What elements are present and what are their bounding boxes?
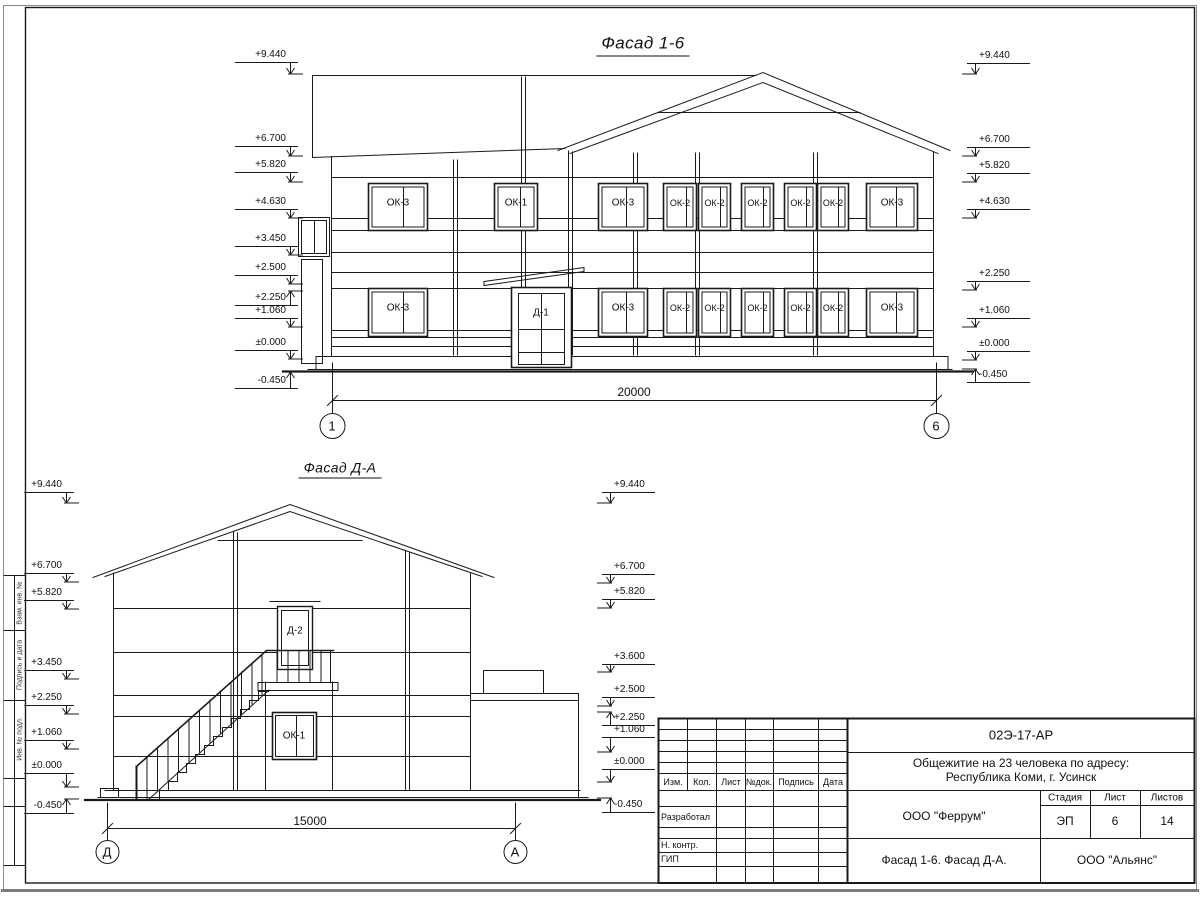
- window-label: ОК-2: [790, 198, 810, 208]
- axis-label: 6: [932, 419, 939, 434]
- titleblock-row-nkontr: Н. контр.: [661, 840, 698, 850]
- sidestamp-podpis-data: Подпись и дата: [17, 640, 24, 690]
- roof-box: [484, 671, 544, 694]
- titleblock-stage-label: Стадия: [1048, 793, 1082, 804]
- elevation-label: +6.700: [979, 134, 1010, 145]
- axis-label: А: [511, 845, 520, 860]
- titleblock-project-line1: Общежитие на 23 человека по адресу:: [913, 756, 1129, 770]
- dimension-label: 15000: [293, 814, 326, 828]
- titleblock-sheet-value: 6: [1112, 814, 1119, 828]
- elevation-label: +2.250: [614, 712, 645, 723]
- titleblock-sheets-value: 14: [1160, 814, 1173, 828]
- elevation-label: +5.820: [979, 160, 1010, 171]
- titleblock-contractor: ООО "Альянс": [1077, 853, 1157, 867]
- facade-16-title: Фасад 1-6: [596, 34, 689, 57]
- elevation-label: -0.450: [258, 375, 286, 386]
- titleblock-company: ООО "Феррум": [903, 809, 986, 823]
- sidestamp-vzam-inv: Взам. инв. №: [17, 581, 24, 624]
- window-label: ОК-2: [823, 198, 843, 208]
- window-label: ОК-2: [670, 198, 690, 208]
- window-label: ОК-2: [704, 303, 724, 313]
- wing: [471, 694, 579, 799]
- elevation-label: +2.250: [255, 292, 286, 303]
- elevation-label: +2.250: [979, 268, 1010, 279]
- window-label: ОК-1: [283, 731, 306, 742]
- elevation-label: +4.630: [255, 196, 286, 207]
- elevation-label: +6.700: [614, 561, 645, 572]
- door-label: Д-1: [533, 308, 549, 319]
- elevation-label: +6.700: [31, 560, 62, 571]
- elevation-label: -0.450: [614, 799, 642, 810]
- elevation-label: +5.820: [255, 159, 286, 170]
- titleblock-sheets-label: Листов: [1151, 793, 1184, 804]
- elevation-label: ±0.000: [255, 337, 286, 348]
- stoop: [101, 789, 119, 798]
- window-label: ОК-1: [505, 197, 528, 208]
- titleblock-col-data: Дата: [823, 777, 843, 787]
- elevation-label: ±0.000: [979, 338, 1010, 349]
- window-label: ОК-2: [823, 303, 843, 313]
- titleblock-project-line2: Республика Коми, г. Усинск: [946, 770, 1097, 784]
- titleblock-col-podpis: Подпись: [778, 777, 814, 787]
- elevation-label: +1.060: [979, 305, 1010, 316]
- sidestamp-inv-podl: Инв. № подл.: [17, 717, 24, 761]
- drawing-sheet: Фасад 1-6 Фасад Д-А 20000 15000 1 6 Д А …: [0, 0, 1200, 900]
- dimension-label: 20000: [617, 385, 650, 399]
- elevation-label: -0.450: [979, 369, 1007, 380]
- elevation-label: +9.440: [614, 479, 645, 490]
- elevation-label: +3.450: [31, 657, 62, 668]
- flat-roof: [313, 76, 757, 158]
- elevation-label: +9.440: [31, 479, 62, 490]
- titleblock-stage-value: ЭП: [1056, 814, 1073, 828]
- door-label: Д-2: [287, 626, 303, 637]
- facade-16-drawing: [283, 73, 973, 439]
- elevation-label: +6.700: [255, 133, 286, 144]
- plinth: [98, 791, 588, 798]
- titleblock-sheet-label: Лист: [1104, 793, 1126, 804]
- window-label: ОК-3: [881, 197, 904, 208]
- titleblock-col-kol: Кол.: [693, 777, 711, 787]
- elevation-label: +9.440: [255, 49, 286, 60]
- elevation-label: +1.060: [31, 727, 62, 738]
- elevation-label: +5.820: [31, 587, 62, 598]
- titleblock-doc-number: 02Э-17-АР: [989, 728, 1053, 743]
- window-label: ОК-2: [747, 303, 767, 313]
- elevation-label: +1.060: [614, 724, 645, 735]
- axis-label: Д: [103, 845, 112, 860]
- window-label: ОК-2: [670, 303, 690, 313]
- elevation-label: +3.600: [614, 651, 645, 662]
- elevation-label: +2.500: [255, 262, 286, 273]
- elevation-label: +3.450: [255, 233, 286, 244]
- facade-da-title: Фасад Д-А: [299, 460, 382, 479]
- stairs: [148, 690, 269, 800]
- window-label: ОК-3: [612, 302, 635, 313]
- titleblock-col-ndok: №док.: [746, 777, 772, 787]
- elevation-label: -0.450: [34, 800, 62, 811]
- elevation-label: +5.820: [614, 586, 645, 597]
- elevation-label: ±0.000: [614, 756, 645, 767]
- window-label: ОК-2: [747, 198, 767, 208]
- titleblock-col-izm: Изм.: [663, 777, 682, 787]
- elevation-label: +4.630: [979, 196, 1010, 207]
- elevation-label: +2.250: [31, 692, 62, 703]
- window-label: ОК-3: [881, 302, 904, 313]
- window-label: ОК-2: [790, 303, 810, 313]
- door-d2: [278, 607, 313, 670]
- plinth: [308, 357, 952, 370]
- window-label: ОК-3: [387, 197, 410, 208]
- window-label: ОК-2: [704, 198, 724, 208]
- titleblock-row-razrabotal: Разработал: [661, 812, 710, 822]
- window-label: ОК-3: [387, 302, 410, 313]
- window-label: ОК-3: [612, 197, 635, 208]
- axis-label: 1: [328, 419, 335, 434]
- elevation-label: ±0.000: [31, 760, 62, 771]
- titleblock-col-list: Лист: [721, 777, 741, 787]
- elevation-label: +9.440: [979, 50, 1010, 61]
- elevation-label: +1.060: [255, 305, 286, 316]
- facade-da-drawing: [85, 505, 600, 864]
- elevation-label: +2.500: [614, 684, 645, 695]
- titleblock-sheet-title: Фасад 1-6. Фасад Д-А.: [881, 853, 1006, 867]
- titleblock-row-gip: ГИП: [661, 854, 679, 864]
